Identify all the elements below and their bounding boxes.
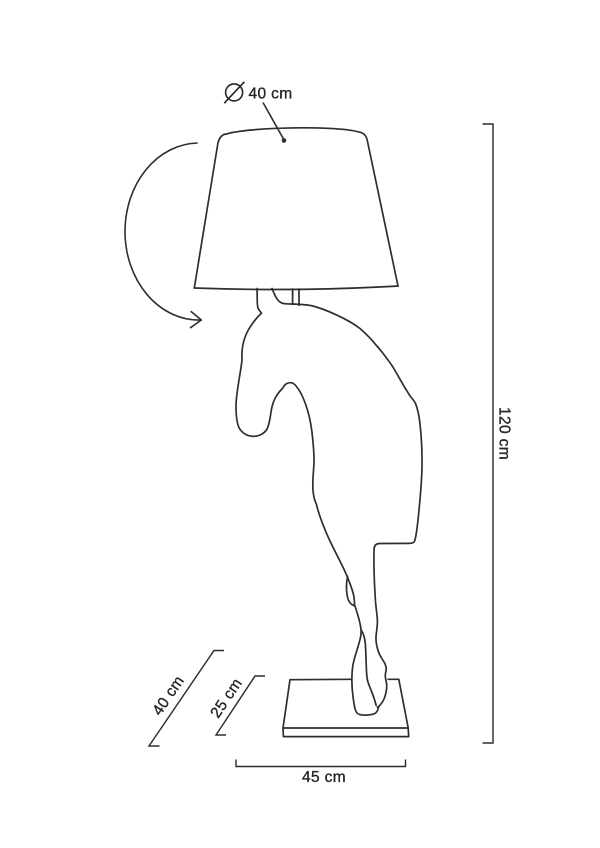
svg-text:45 cm: 45 cm — [302, 769, 346, 786]
svg-text:120 cm: 120 cm — [496, 407, 513, 460]
svg-text:40 cm: 40 cm — [149, 673, 188, 719]
svg-text:40 cm: 40 cm — [249, 86, 293, 103]
